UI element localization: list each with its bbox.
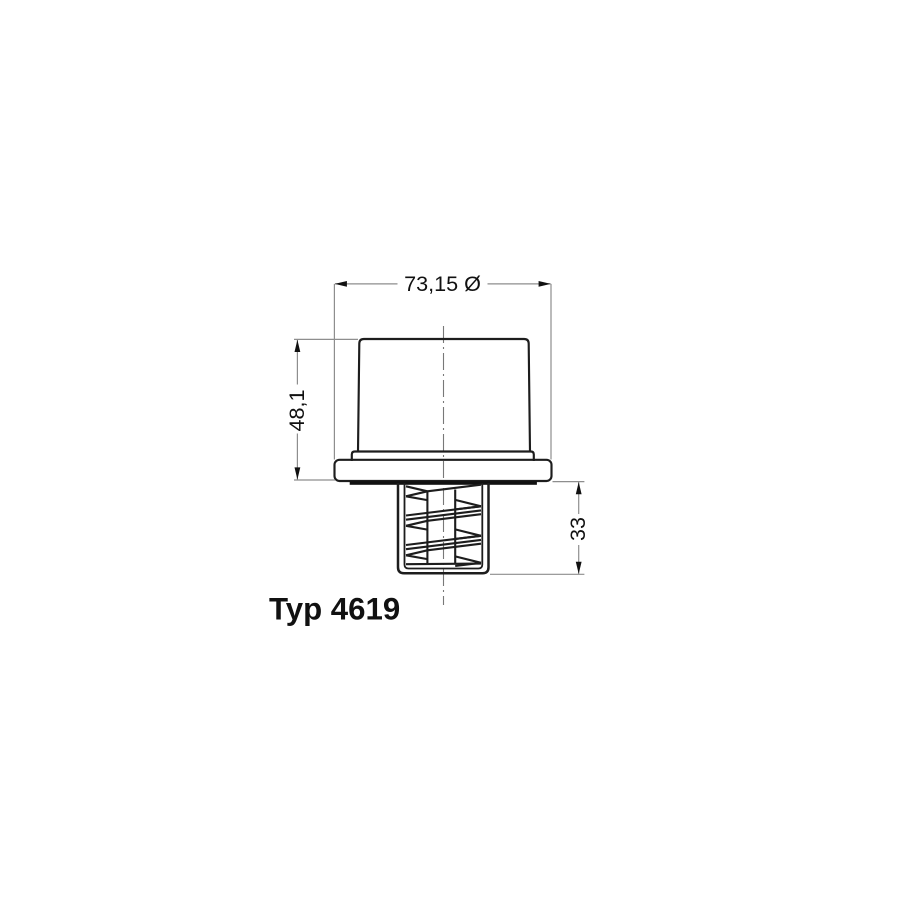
svg-text:Typ 4619: Typ 4619 (269, 592, 400, 627)
svg-text:33: 33 (565, 517, 590, 541)
svg-text:48,1: 48,1 (284, 389, 309, 431)
svg-text:73,15 Ø: 73,15 Ø (404, 271, 481, 296)
